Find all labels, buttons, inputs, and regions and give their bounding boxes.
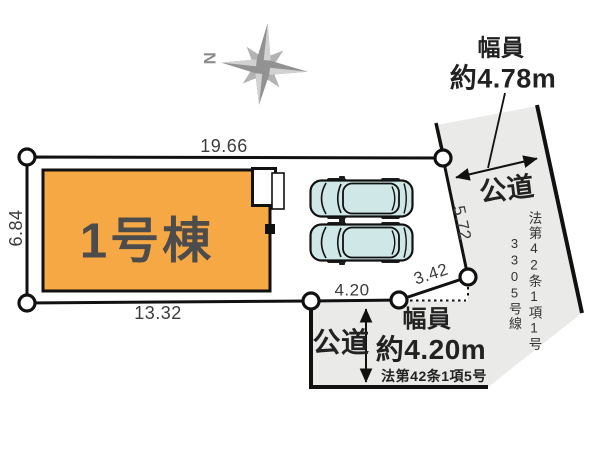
right-road-width-caption: 幅員 <box>478 37 525 60</box>
corner-marker-top-right <box>435 150 451 166</box>
corner-marker-top-left <box>19 149 35 165</box>
car-icon-2 <box>311 220 413 265</box>
dimension-top: 19.66 <box>200 137 248 155</box>
building-porch-step <box>272 173 284 209</box>
dimension-bottom: 13.32 <box>134 304 182 322</box>
lot-plan-diagram: N 1号棟 19.66 6.84 13.32 4.20 3.42 5.72 幅員… <box>0 0 600 456</box>
right-road-width-value: 約4.78m <box>450 66 557 93</box>
compass-icon <box>217 19 312 110</box>
dimension-left: 6.84 <box>7 209 25 246</box>
right-road-name: 公道 <box>478 173 536 207</box>
compass-north-label: N <box>202 52 219 65</box>
car-icon-1 <box>311 176 413 221</box>
right-road-law-ref: 法第42条1項1号 <box>527 211 541 352</box>
corner-marker-bottom-left <box>19 295 35 311</box>
building-label: 1号棟 <box>80 218 214 267</box>
corner-marker-bottom-mid <box>303 293 319 309</box>
bottom-road-width-value: 約4.20m <box>376 336 486 364</box>
bottom-road-name: 公道 <box>312 329 369 357</box>
right-road-line-ref: 3305号線 <box>508 236 521 331</box>
dimension-bottom-mid: 4.20 <box>334 282 369 299</box>
corner-marker-right <box>460 269 476 285</box>
bottom-road-law-ref: 法第42条1項5号 <box>381 369 487 383</box>
building-wall-step <box>265 224 275 234</box>
bottom-road-width-caption: 幅員 <box>403 308 452 332</box>
